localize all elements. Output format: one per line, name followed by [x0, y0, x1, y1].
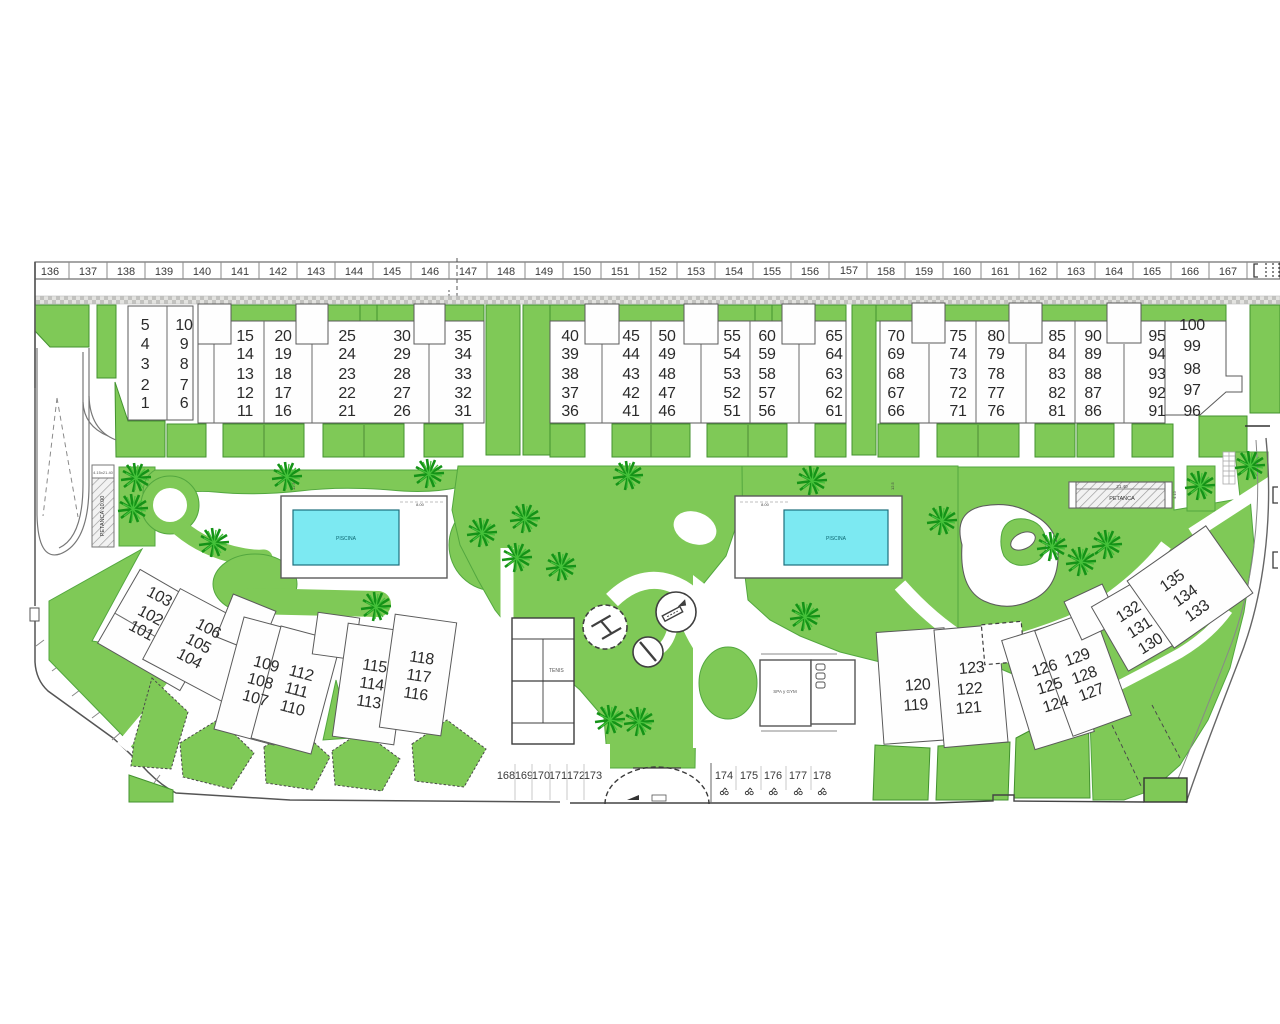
- svg-text:178: 178: [813, 770, 831, 782]
- svg-text:78: 78: [987, 366, 1005, 383]
- svg-text:76: 76: [987, 403, 1005, 420]
- svg-text:3: 3: [141, 356, 150, 373]
- svg-text:80: 80: [987, 328, 1005, 345]
- svg-text:24: 24: [338, 346, 356, 363]
- svg-text:148: 148: [497, 266, 515, 278]
- svg-text:51: 51: [723, 403, 741, 420]
- svg-text:11: 11: [237, 403, 253, 420]
- svg-text:59: 59: [758, 346, 776, 363]
- svg-text:50: 50: [658, 328, 676, 345]
- svg-text:115: 115: [361, 656, 388, 676]
- svg-text:172: 172: [567, 770, 585, 782]
- svg-text:37: 37: [561, 385, 579, 402]
- svg-text:86: 86: [1084, 403, 1102, 420]
- svg-text:98: 98: [1183, 361, 1201, 378]
- svg-text:173: 173: [584, 770, 602, 782]
- svg-text:113: 113: [355, 692, 382, 712]
- svg-text:142: 142: [269, 266, 287, 278]
- svg-text:81: 81: [1048, 403, 1066, 420]
- svg-text:120: 120: [904, 676, 931, 695]
- svg-text:36: 36: [561, 403, 579, 420]
- svg-text:66: 66: [887, 403, 905, 420]
- svg-text:35: 35: [454, 328, 472, 345]
- svg-text:19: 19: [274, 346, 292, 363]
- svg-text:8: 8: [180, 356, 189, 373]
- svg-text:95: 95: [1148, 328, 1166, 345]
- svg-text:175: 175: [740, 770, 758, 782]
- svg-text:56: 56: [758, 403, 776, 420]
- svg-text:77: 77: [987, 385, 1005, 402]
- svg-text:85: 85: [1048, 328, 1066, 345]
- svg-text:67: 67: [887, 385, 905, 402]
- svg-text:138: 138: [117, 266, 135, 278]
- svg-text:87: 87: [1084, 385, 1102, 402]
- svg-text:168: 168: [497, 770, 515, 782]
- svg-text:34: 34: [454, 346, 472, 363]
- svg-text:167: 167: [1219, 266, 1237, 278]
- svg-text:29: 29: [393, 346, 411, 363]
- svg-text:139: 139: [155, 266, 173, 278]
- svg-text:4.15: 4.15: [1172, 490, 1177, 499]
- svg-text:123: 123: [958, 659, 986, 678]
- svg-text:6: 6: [180, 395, 189, 412]
- svg-text:60: 60: [758, 328, 776, 345]
- svg-text:4.15x21.40: 4.15x21.40: [93, 470, 114, 475]
- svg-text:159: 159: [915, 266, 933, 278]
- svg-text:116: 116: [402, 684, 429, 704]
- svg-text:163: 163: [1067, 266, 1085, 278]
- svg-text:74: 74: [949, 346, 967, 363]
- svg-text:16: 16: [274, 403, 292, 420]
- svg-text:25: 25: [338, 328, 356, 345]
- svg-text:150: 150: [573, 266, 591, 278]
- svg-text:141: 141: [231, 266, 249, 278]
- svg-text:162: 162: [1029, 266, 1047, 278]
- svg-text:118: 118: [408, 648, 435, 668]
- svg-text:84: 84: [1048, 346, 1066, 363]
- svg-text:88: 88: [1084, 366, 1102, 383]
- svg-text:100: 100: [1179, 317, 1205, 334]
- svg-text:28: 28: [393, 366, 411, 383]
- svg-text:82: 82: [1048, 385, 1066, 402]
- svg-text:52: 52: [723, 385, 741, 402]
- svg-text:8.00: 8.00: [416, 502, 425, 507]
- svg-text:21.40: 21.40: [1116, 484, 1128, 489]
- svg-text:176: 176: [764, 770, 782, 782]
- svg-text:160: 160: [953, 266, 971, 278]
- svg-text:9: 9: [180, 336, 189, 353]
- svg-text:53: 53: [723, 366, 741, 383]
- svg-text:157: 157: [840, 265, 858, 277]
- svg-text:43: 43: [622, 366, 640, 383]
- svg-text:22: 22: [338, 385, 356, 402]
- svg-text:122: 122: [956, 680, 984, 699]
- svg-text:40: 40: [561, 328, 579, 345]
- svg-text:SPA y GYM: SPA y GYM: [773, 689, 797, 694]
- svg-text:96: 96: [1183, 403, 1201, 420]
- svg-text:45: 45: [622, 328, 640, 345]
- svg-text:83: 83: [1048, 366, 1066, 383]
- svg-text:7: 7: [180, 377, 189, 394]
- svg-text:69: 69: [887, 346, 905, 363]
- svg-text:155: 155: [763, 266, 781, 278]
- svg-text:68: 68: [887, 366, 905, 383]
- svg-text:93: 93: [1148, 366, 1166, 383]
- svg-text:15: 15: [236, 328, 254, 345]
- svg-text:21: 21: [338, 403, 356, 420]
- svg-text:166: 166: [1181, 266, 1199, 278]
- svg-text:44: 44: [622, 346, 640, 363]
- svg-text:17: 17: [274, 385, 292, 402]
- svg-text:97: 97: [1183, 382, 1201, 399]
- svg-text:152: 152: [649, 266, 667, 278]
- svg-text:5: 5: [141, 317, 150, 334]
- svg-text:8.00: 8.00: [761, 502, 770, 507]
- svg-text:136: 136: [41, 266, 59, 278]
- svg-text:121: 121: [955, 699, 983, 718]
- svg-text:62: 62: [825, 385, 843, 402]
- svg-text:PETANCA 10.00: PETANCA 10.00: [100, 496, 106, 537]
- svg-text:90: 90: [1084, 328, 1102, 345]
- svg-text:30: 30: [393, 328, 411, 345]
- svg-text:20: 20: [274, 328, 292, 345]
- svg-text:2: 2: [141, 377, 150, 394]
- svg-text:151: 151: [611, 266, 629, 278]
- svg-text:89: 89: [1084, 346, 1102, 363]
- svg-text:92: 92: [1148, 385, 1166, 402]
- svg-text:174: 174: [715, 770, 733, 782]
- svg-text:146: 146: [421, 266, 439, 278]
- svg-text:33: 33: [454, 366, 472, 383]
- svg-text:144: 144: [345, 266, 363, 278]
- svg-text:65: 65: [825, 328, 843, 345]
- svg-text:91: 91: [1148, 403, 1166, 420]
- svg-text:26: 26: [393, 403, 411, 420]
- svg-text:41: 41: [622, 403, 640, 420]
- svg-text:55: 55: [723, 328, 741, 345]
- svg-text:72: 72: [949, 385, 967, 402]
- svg-text:13: 13: [236, 366, 254, 383]
- svg-text:119: 119: [903, 696, 929, 715]
- svg-text:161: 161: [991, 266, 1009, 278]
- svg-text:10: 10: [175, 317, 193, 334]
- svg-text:79: 79: [987, 346, 1005, 363]
- svg-text:170: 170: [532, 770, 550, 782]
- svg-text:94: 94: [1148, 346, 1166, 363]
- svg-text:57: 57: [758, 385, 776, 402]
- svg-text:75: 75: [949, 328, 967, 345]
- svg-text:145: 145: [383, 266, 401, 278]
- svg-text:39: 39: [561, 346, 579, 363]
- svg-text:PISCINA: PISCINA: [336, 536, 357, 542]
- svg-text:27: 27: [393, 385, 411, 402]
- svg-text:117: 117: [405, 666, 432, 686]
- svg-text:32: 32: [454, 385, 472, 402]
- svg-text:38: 38: [561, 366, 579, 383]
- svg-text:23: 23: [338, 366, 356, 383]
- svg-text:42: 42: [622, 385, 640, 402]
- svg-text:73: 73: [949, 366, 967, 383]
- svg-text:63: 63: [825, 366, 843, 383]
- svg-text:PETANCA: PETANCA: [1109, 496, 1135, 502]
- svg-text:143: 143: [307, 266, 325, 278]
- svg-text:140: 140: [193, 266, 211, 278]
- svg-text:4: 4: [141, 336, 150, 353]
- svg-text:47: 47: [658, 385, 676, 402]
- svg-text:64: 64: [825, 346, 843, 363]
- svg-text:70: 70: [887, 328, 905, 345]
- svg-text:154: 154: [725, 266, 743, 278]
- svg-text:54: 54: [723, 346, 741, 363]
- svg-text:31: 31: [454, 403, 472, 420]
- svg-text:46: 46: [658, 403, 676, 420]
- svg-text:171: 171: [549, 770, 567, 782]
- svg-text:153: 153: [687, 266, 705, 278]
- svg-text:156: 156: [801, 266, 819, 278]
- svg-text:12.5: 12.5: [890, 481, 895, 490]
- svg-text:71: 71: [949, 403, 967, 420]
- svg-text:PISCINA: PISCINA: [826, 536, 847, 542]
- svg-text:61: 61: [825, 403, 843, 420]
- svg-text:158: 158: [877, 266, 895, 278]
- svg-text:49: 49: [658, 346, 676, 363]
- svg-text:177: 177: [789, 770, 807, 782]
- svg-text:48: 48: [658, 366, 676, 383]
- svg-text:169: 169: [515, 770, 533, 782]
- svg-text:149: 149: [535, 266, 553, 278]
- svg-text:137: 137: [79, 266, 97, 278]
- svg-text:114: 114: [358, 674, 385, 694]
- svg-text:165: 165: [1143, 266, 1161, 278]
- svg-text:TENIS: TENIS: [549, 668, 564, 674]
- svg-text:1: 1: [141, 395, 150, 412]
- svg-text:58: 58: [758, 366, 776, 383]
- svg-text:12: 12: [236, 385, 254, 402]
- svg-text:14: 14: [236, 346, 254, 363]
- svg-text:99: 99: [1183, 338, 1201, 355]
- svg-text:147: 147: [459, 266, 477, 278]
- svg-text:164: 164: [1105, 266, 1123, 278]
- svg-text:18: 18: [274, 366, 292, 383]
